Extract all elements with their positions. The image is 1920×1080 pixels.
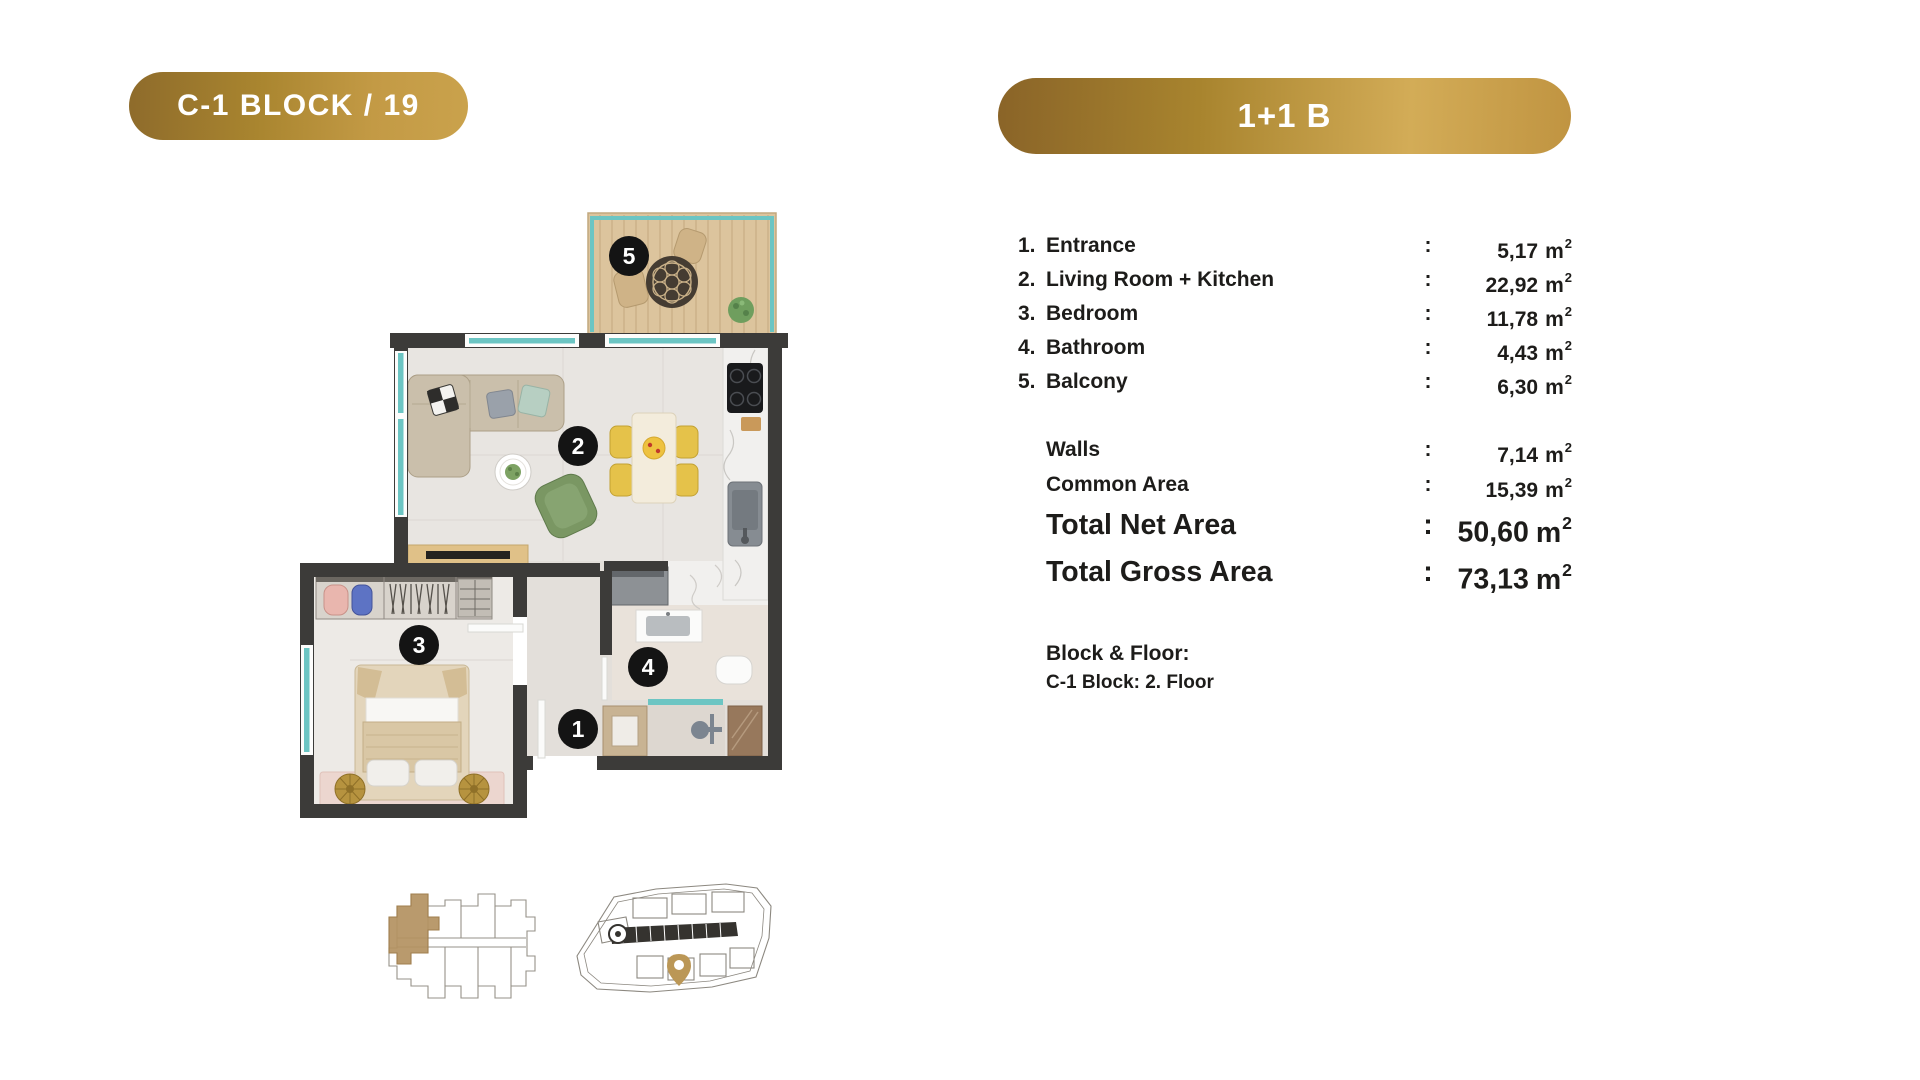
row-number: 2. (1018, 263, 1036, 297)
table-row-walls: Walls : 7,14m2 (1018, 432, 1572, 467)
toilet (716, 656, 752, 684)
vanity-sink (636, 610, 702, 642)
table-gap (1018, 399, 1572, 432)
bedroom-door-leaf (468, 624, 523, 632)
row-label: Total Net Area (1046, 502, 1236, 549)
row-label: Common Area (1046, 467, 1189, 502)
row-value: 73,13m2 (1458, 549, 1573, 604)
shower (648, 699, 725, 756)
unit-type-label: 1+1 B (1238, 97, 1332, 135)
kitchen-sink (728, 482, 762, 546)
row-number: 1. (1018, 229, 1036, 263)
mint-cushion (517, 384, 550, 417)
cutting-board (741, 417, 761, 431)
dining-chair (674, 426, 698, 458)
block-floor-info: Block & Floor: C-1 Block: 2. Floor (1046, 641, 1214, 696)
dining-chair (610, 426, 634, 458)
entrance-door-leaf (538, 700, 545, 758)
block-floor-value: C-1 Block: 2. Floor (1046, 670, 1214, 696)
shelf-unit (458, 579, 492, 617)
table-plant (505, 464, 521, 480)
row-colon: : (1422, 549, 1434, 596)
block-floor-title: Block & Floor: (1046, 641, 1214, 667)
badge-living-number: 2 (572, 433, 585, 459)
badge-entrance-number: 1 (572, 716, 585, 742)
tv (426, 551, 510, 559)
row-label: Living Room + Kitchen (1046, 263, 1274, 297)
badge-balcony-number: 5 (623, 243, 636, 269)
row-label: Bedroom (1046, 297, 1138, 331)
row-colon: : (1422, 432, 1434, 467)
areas-table: 1. Entrance : 5,17m2 2. Living Room + Ki… (1018, 229, 1572, 596)
row-colon: : (1422, 467, 1434, 502)
row-colon: : (1422, 263, 1434, 297)
site-plan-diagram (577, 884, 771, 992)
table-row: 1. Entrance : 5,17m2 (1018, 229, 1572, 263)
unit-flyer-page: C-1 BLOCK / 19 1+1 B (0, 0, 1920, 1080)
coffee-table (495, 454, 531, 490)
row-label: Entrance (1046, 229, 1136, 263)
washing-machine (606, 567, 668, 605)
key-plans (380, 876, 790, 1008)
table-row: 3. Bedroom : 11,78m2 (1018, 297, 1572, 331)
row-colon: : (1422, 229, 1434, 263)
table-row-total-net: Total Net Area : 50,60m2 (1018, 502, 1572, 549)
wardrobe (316, 577, 492, 619)
row-colon: : (1422, 502, 1434, 549)
shoe-cabinet (603, 706, 647, 756)
unit-type-badge: 1+1 B (998, 78, 1571, 154)
row-value: 6,30m2 (1497, 365, 1572, 405)
pouf (335, 774, 365, 804)
dining-chair (674, 464, 698, 496)
kitchen-counter (723, 347, 768, 600)
balcony-plant (728, 297, 754, 323)
row-number: 3. (1018, 297, 1036, 331)
row-colon: : (1422, 297, 1434, 331)
bed (355, 665, 469, 800)
row-label: Bathroom (1046, 331, 1145, 365)
row-label: Walls (1046, 432, 1100, 467)
block-number-badge: C-1 BLOCK / 19 (129, 72, 468, 140)
row-label: Total Gross Area (1046, 549, 1272, 596)
table-row: 5. Balcony : 6,30m2 (1018, 365, 1572, 399)
row-number: 4. (1018, 331, 1036, 365)
block-number-label: C-1 BLOCK / 19 (177, 89, 420, 123)
gray-cushion (486, 389, 516, 419)
balcony (588, 213, 776, 336)
garment-bag-pink (324, 585, 348, 615)
garment-bag-blue (352, 585, 372, 615)
dining-chair (610, 464, 634, 496)
pouf (459, 774, 489, 804)
table-row: 2. Living Room + Kitchen : 22,92m2 (1018, 263, 1572, 297)
table-row: 4. Bathroom : 4,43m2 (1018, 331, 1572, 365)
row-label: Balcony (1046, 365, 1128, 399)
fruit-bowl (643, 437, 665, 459)
row-number: 5. (1018, 365, 1036, 399)
bathroom-door-leaf (602, 657, 607, 700)
floor-key-diagram (389, 894, 535, 998)
balcony-table (646, 256, 698, 308)
cooktop (727, 363, 763, 413)
row-colon: : (1422, 331, 1434, 365)
table-row-common-area: Common Area : 15,39m2 (1018, 467, 1572, 502)
pillow (415, 760, 457, 786)
table-row-total-gross: Total Gross Area : 73,13m2 (1018, 549, 1572, 596)
badge-bathroom-number: 4 (642, 654, 655, 680)
badge-bedroom-number: 3 (413, 632, 426, 658)
shower-glass (648, 699, 723, 705)
pillow (367, 760, 409, 786)
row-colon: : (1422, 365, 1434, 399)
floor-plan: 1 2 3 4 5 (290, 200, 790, 830)
dining-set (610, 413, 698, 503)
